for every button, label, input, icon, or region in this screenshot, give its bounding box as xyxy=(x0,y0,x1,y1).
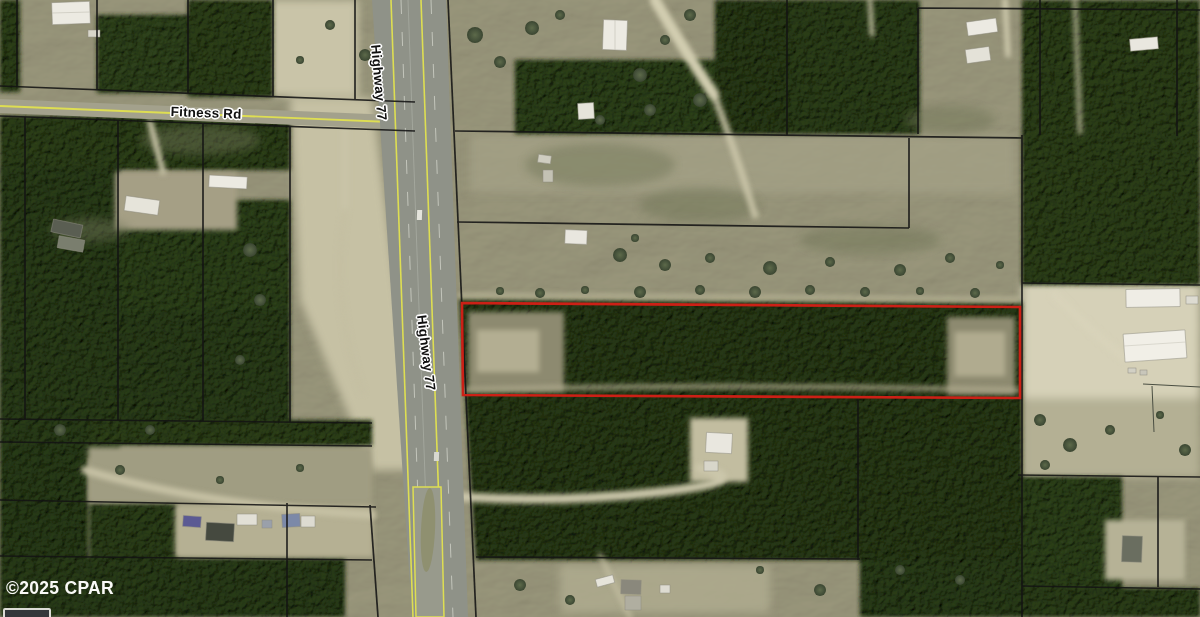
aerial-map-viewport[interactable]: Fitness Rd Highway 77 Highway 77 ©2025 C… xyxy=(0,0,1200,617)
road-label-fitness-rd: Fitness Rd xyxy=(170,104,242,122)
vehicle-on-highway xyxy=(417,210,422,220)
partial-logo-box xyxy=(3,608,51,617)
copyright-watermark: ©2025 CPAR xyxy=(6,578,114,599)
vehicle-on-highway xyxy=(434,452,439,461)
aerial-map xyxy=(0,0,1200,617)
